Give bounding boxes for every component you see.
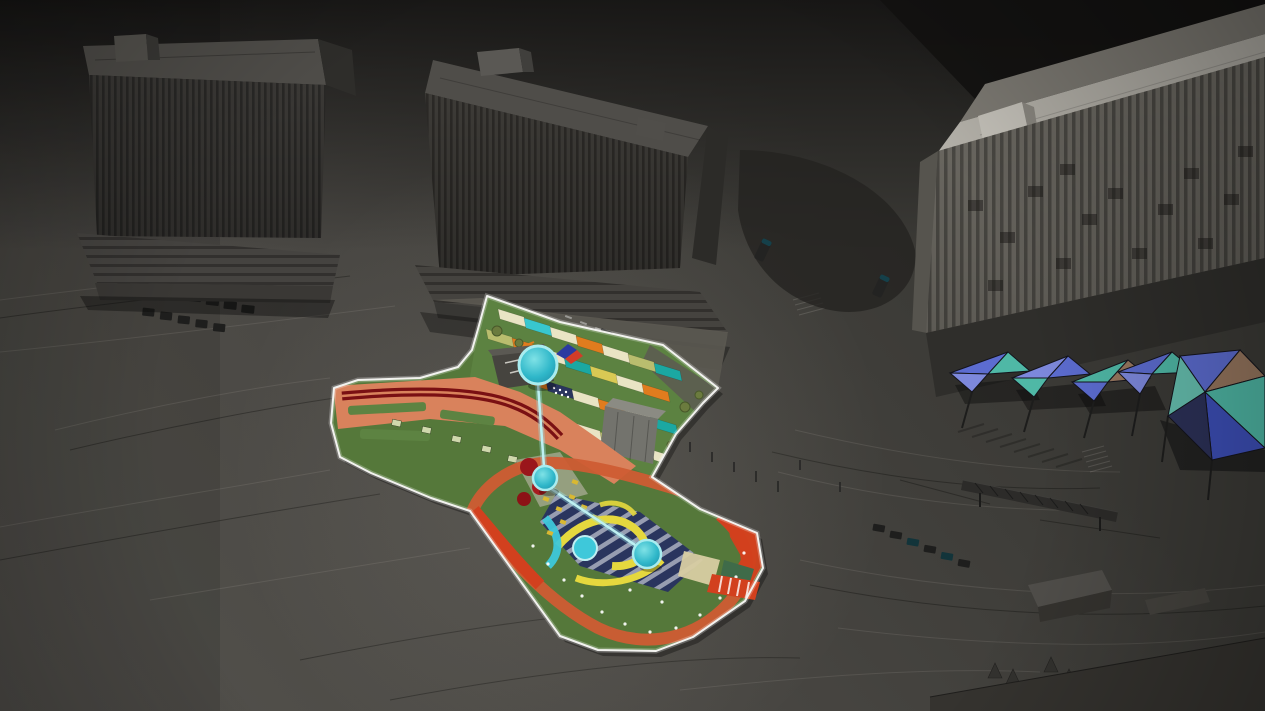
masterplan-rendering	[0, 0, 1265, 711]
rendering-canvas	[0, 0, 1265, 711]
vignette	[0, 0, 1265, 711]
